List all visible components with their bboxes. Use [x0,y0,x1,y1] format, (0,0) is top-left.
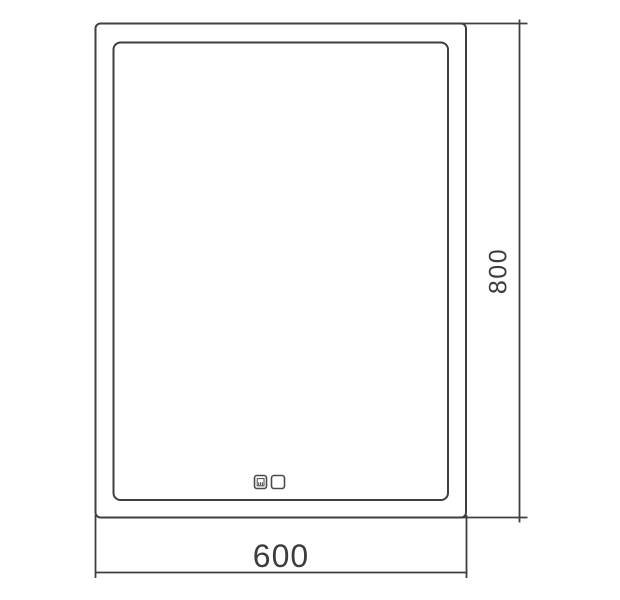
mirror-inner-border [114,43,449,501]
width-dimension-label: 600 [253,538,309,574]
dimension-drawing-svg: 800 600 [0,0,620,600]
height-dimension-label: 800 [485,248,513,294]
touch-sensor-icon [272,476,285,489]
clock-display-icon [255,476,267,489]
mirror-outer-frame [96,24,467,518]
technical-drawing: 800 600 [0,0,620,600]
